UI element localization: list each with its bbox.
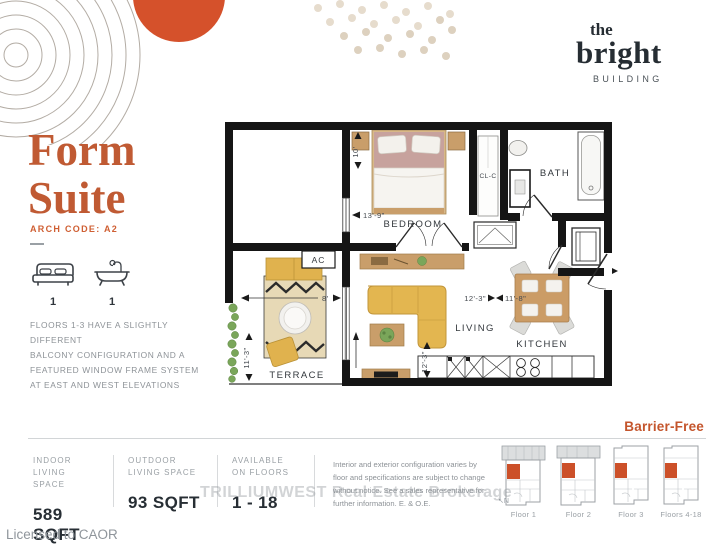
keyplan-floors4-18: Floors 4-18	[660, 444, 702, 519]
configuration-note: FLOORS 1-3 HAVE A SLIGHTLY DIFFERENT BAL…	[30, 318, 215, 393]
living-label: LIVING	[455, 323, 495, 334]
suite-title-line1: Form	[28, 126, 135, 174]
kitchen-label: KITCHEN	[516, 339, 568, 350]
stat-value: 93 SQFT	[128, 493, 203, 513]
kitchen-counter	[418, 356, 594, 378]
logo-name: bright	[576, 38, 686, 68]
terrace-plants	[228, 304, 239, 383]
keyplan-floor1: Floor 1	[500, 444, 547, 519]
divider-dash	[30, 243, 44, 245]
stat-label: LIVING SPACE	[128, 467, 203, 479]
suite-title-line2: Suite	[28, 174, 135, 222]
stat-label: LIVING SPACE	[33, 467, 99, 491]
floor-plan: AC 10' 13'-9" 8' 11'-3" 12'-3" 11'-8"	[222, 118, 622, 396]
stat-outdoor: OUTDOOR LIVING SPACE 93 SQFT	[128, 455, 203, 513]
stat-label: OUTDOOR	[128, 455, 203, 467]
dim-terrace-width: 8'	[322, 294, 329, 303]
bed-furniture	[352, 130, 465, 214]
ac-label: AC	[312, 255, 326, 265]
bath-count: 1	[109, 296, 115, 308]
closet-label: CL-C	[480, 173, 497, 180]
barrier-free-badge: Barrier-Free	[624, 419, 704, 434]
disclaimer-line: Interior and exterior configuration vari…	[333, 458, 503, 471]
hall-closet	[474, 222, 516, 248]
keyplan-label: Floor 3	[618, 510, 643, 519]
unit-legend: 1 1	[30, 258, 132, 308]
logo-subtitle: BUILDING	[593, 74, 686, 84]
ac-unit: AC	[302, 251, 335, 268]
keyplan-floor3-map	[610, 444, 652, 506]
dim-living-width-a: 12'-3"	[464, 294, 486, 303]
bath-label: BATH	[540, 168, 570, 179]
keyplan-label: Floor 2	[566, 510, 591, 519]
bathtub-icon	[92, 258, 132, 288]
keyplan-floor3: Floor 3	[610, 444, 652, 519]
washer-dryer	[572, 228, 600, 265]
arch-code: ARCH CODE: A2	[30, 224, 118, 234]
keyplan-floors4-18-map	[660, 444, 702, 506]
keyplan-floor2: Floor 2	[555, 444, 602, 519]
suite-title: Form Suite	[28, 126, 135, 222]
stat-divider	[113, 455, 114, 507]
keyplan-floor2-map	[555, 444, 602, 506]
brochure-page: the bright BUILDING Form Suite ARCH CODE…	[0, 0, 712, 550]
dim-bedroom-width: 10'	[351, 146, 360, 157]
bed-icon	[30, 258, 76, 288]
note-line: AT EAST AND WEST ELEVATIONS	[30, 378, 215, 393]
building-logo: the bright BUILDING	[576, 22, 686, 84]
dim-terrace-length: 11'-3"	[242, 347, 251, 368]
bedroom-window	[343, 198, 349, 232]
brokerage-watermark: TRILLIUMWEST Real Estate Brokerage	[200, 484, 512, 502]
keyplan-label: Floors 4-18	[660, 510, 701, 519]
bed-legend: 1	[30, 258, 76, 308]
concentric-circles-decor	[0, 0, 150, 145]
stat-label: AVAILABLE	[232, 455, 300, 467]
bedroom-label: BEDROOM	[384, 219, 443, 230]
licensed-note: Licensed to CAOR	[6, 527, 118, 542]
bath-legend: 1	[92, 258, 132, 308]
stat-label: INDOOR	[33, 455, 99, 467]
disclaimer-line: floor and specifications are subject to …	[333, 471, 503, 484]
dim-living-length: 12'-3"	[420, 351, 429, 373]
terrace-sliding-door	[343, 287, 359, 368]
bed-count: 1	[50, 296, 56, 308]
dim-bedroom-length: 13'-9"	[363, 211, 385, 220]
keyplan-label: Floor 1	[511, 510, 536, 519]
footer-rule	[28, 438, 706, 439]
terrace-label: TERRACE	[269, 370, 324, 381]
note-line: FEATURED WINDOW FRAME SYSTEM	[30, 363, 215, 378]
stat-label: ON FLOORS	[232, 467, 300, 479]
note-line: BALCONY CONFIGURATION AND A	[30, 348, 215, 363]
dots-pattern-decor	[300, 0, 470, 68]
dim-living-width-b: 11'-8"	[505, 294, 526, 303]
floor-key-plans: Floor 1 Floor 2	[500, 444, 702, 519]
note-line: FLOORS 1-3 HAVE A SLIGHTLY DIFFERENT	[30, 318, 215, 348]
